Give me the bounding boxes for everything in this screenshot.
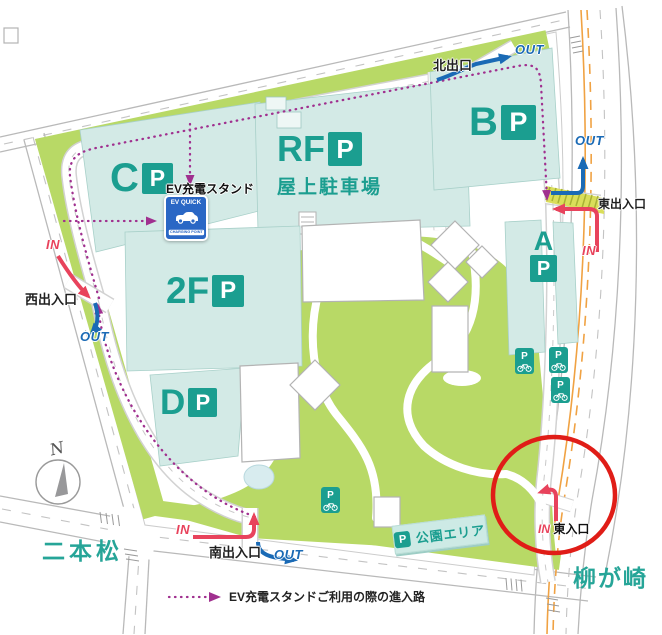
bicycle-glyph (517, 362, 532, 372)
parking-p-icon: P (212, 275, 244, 307)
lot-letter: C (110, 160, 139, 196)
ev-sign-subtitle: CHARGING POINT (168, 230, 203, 236)
district-nihonmatsu: 二本松 (42, 532, 123, 566)
parking-p-icon: P (188, 388, 217, 417)
lot-letter: D (160, 387, 185, 419)
east-gate-label: 東出入口 (598, 195, 646, 212)
west-out-text: OUT (80, 329, 109, 344)
south-in-text: IN (176, 522, 190, 537)
parking-p-icon: P (501, 105, 536, 140)
lot-letter: A (534, 229, 554, 253)
parking-a-label: A P (530, 229, 557, 282)
parking-d-label: D P (160, 387, 217, 419)
bicycle-p-text: P (327, 490, 334, 501)
rooftop-parking-subtitle: 屋上駐車場 (277, 172, 382, 199)
bicycle-p-text: P (555, 350, 562, 361)
parking-2f-label: 2F P (166, 274, 244, 307)
bicycle-glyph (323, 501, 338, 511)
legend-dotted-arrow (167, 591, 223, 603)
north-exit-label: 北出口 (433, 55, 472, 74)
bicycle-parking-icon: P (551, 377, 570, 403)
park-area-label: 公園エリア (415, 520, 487, 547)
bicycle-parking-icon: P (515, 348, 534, 374)
lot-letter: 2F (166, 274, 209, 307)
north-out-text: OUT (515, 42, 544, 57)
east-entrance-label: IN 東入口 (538, 520, 589, 537)
parking-p-icon: P (530, 255, 557, 282)
bicycle-p-text: P (521, 351, 528, 362)
parking-p-icon: P (328, 132, 362, 166)
parking-c-label: C P (110, 160, 173, 196)
parking-rf-label: RF P (277, 132, 362, 166)
compass (36, 460, 80, 504)
compass-needle (55, 463, 68, 497)
ev-route-legend: EV充電スタンドご利用の際の進入路 (167, 588, 425, 605)
bicycle-parking-icon: P (549, 347, 568, 373)
district-yanagasaki: 柳が崎 (573, 559, 648, 593)
east-entrance-name: 東入口 (553, 522, 589, 536)
bicycle-parking-icon: P (321, 487, 340, 513)
bicycle-glyph (551, 361, 566, 371)
east-out-text: OUT (575, 133, 604, 148)
ev-car-icon (173, 210, 199, 224)
legend-text: EV充電スタンドご利用の際の進入路 (229, 588, 425, 605)
ev-quick-sign: EV QUICK CHARGING POINT (164, 195, 208, 241)
bicycle-p-text: P (557, 380, 564, 391)
south-gate-label: 南出入口 (209, 542, 261, 561)
ev-sign-title: EV QUICK (171, 199, 201, 205)
west-gate-label: 西出入口 (25, 289, 77, 308)
pond (244, 465, 274, 489)
park-p-icon: P (394, 530, 412, 548)
east-entrance-in-text: IN (538, 522, 550, 536)
lot-letter: RF (277, 133, 325, 165)
east-in-text: IN (582, 243, 596, 258)
parking-b-label: B P (469, 104, 536, 140)
parking-map: C P RF P 屋上駐車場 B P A P 2F P D P 北出口 OUT … (0, 0, 662, 635)
lot-letter: B (469, 104, 498, 140)
west-in-text: IN (46, 237, 60, 252)
compass-circle (36, 460, 80, 504)
south-out-text: OUT (274, 547, 303, 562)
bicycle-glyph (553, 391, 568, 401)
